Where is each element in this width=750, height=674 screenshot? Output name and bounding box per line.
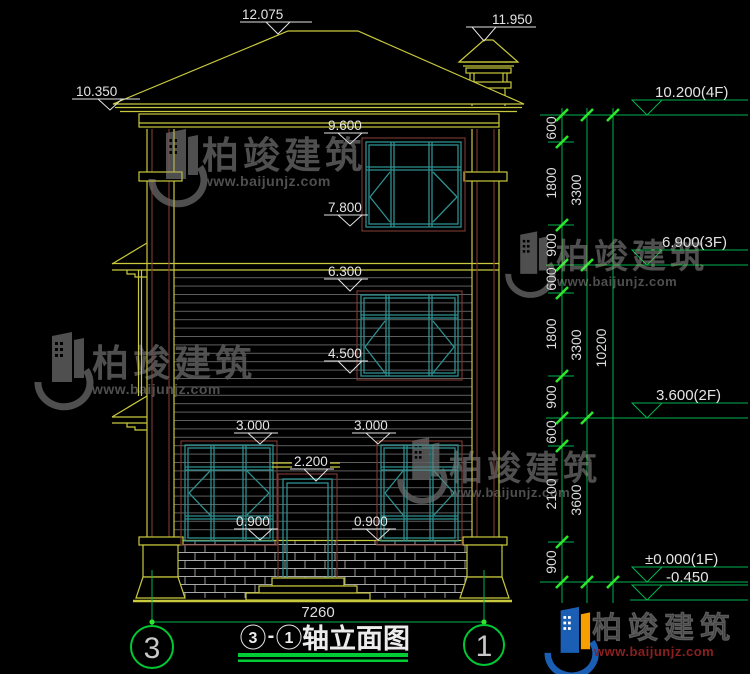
flag-eave-value: 10.350 bbox=[76, 84, 117, 99]
watermark-url: www.baijunjz.com bbox=[201, 173, 331, 189]
dim-node-left bbox=[149, 619, 154, 624]
dim-middle-0: 3300 bbox=[568, 174, 584, 205]
watermark-brand: 柏竣建筑 bbox=[449, 449, 601, 488]
dim-inner-5: 900 bbox=[543, 385, 559, 409]
watermark-url: www.baijunjz.com bbox=[449, 485, 570, 500]
dim-inner-6: 600 bbox=[543, 420, 559, 444]
dim-node-right bbox=[481, 619, 486, 624]
eave-fascia bbox=[139, 114, 499, 127]
watermark-brand: 柏竣建筑 bbox=[556, 237, 708, 276]
chimney-eave-band bbox=[466, 68, 511, 73]
title-underline-thick bbox=[238, 653, 408, 657]
title-text: 轴立面图 bbox=[302, 623, 410, 654]
level-1f-label: ±0.000(1F) bbox=[645, 551, 718, 568]
title-dash: - bbox=[268, 625, 275, 647]
dim-middle-1: 3300 bbox=[568, 329, 584, 360]
flag-w1-top-left-value: 3.000 bbox=[236, 418, 270, 433]
level-ground-label: -0.450 bbox=[666, 569, 709, 586]
title-underline-thin bbox=[238, 660, 408, 663]
title-axis-start: 3 bbox=[249, 630, 258, 647]
dim-inner-0: 600 bbox=[543, 116, 559, 140]
watermark-url: www.baijunjz.com bbox=[91, 381, 221, 397]
right-pilaster-base-cap bbox=[463, 537, 507, 545]
left-pilaster-base-cap bbox=[139, 537, 183, 545]
level-4f-label: 10.200(4F) bbox=[655, 84, 728, 101]
flag-ridge-value: 12.075 bbox=[242, 7, 283, 22]
watermark-brand: 柏竣建筑 bbox=[92, 342, 256, 384]
watermark-url: www.baijunjz.com bbox=[556, 274, 677, 289]
flag-w3-sill-value: 7.800 bbox=[328, 200, 362, 215]
flag-w1-sill-right-value: 0.900 bbox=[354, 514, 388, 529]
flag-w2-sill-value: 4.500 bbox=[328, 346, 362, 361]
left-pilaster-foot bbox=[136, 577, 185, 598]
width-dim-value: 7260 bbox=[301, 604, 334, 621]
dim-inner-4: 1800 bbox=[543, 318, 559, 349]
dim-overall: 10200 bbox=[593, 328, 609, 367]
watermark-brand: 柏竣建筑 bbox=[202, 134, 366, 176]
flag-w1-top-right-value: 3.000 bbox=[354, 418, 388, 433]
flag-w1-sill-left-value: 0.900 bbox=[236, 514, 270, 529]
level-2f-label: 3.600(2F) bbox=[656, 387, 721, 404]
dim-inner-8: 900 bbox=[543, 550, 559, 574]
right-pilaster-capital bbox=[464, 172, 507, 181]
axis-left-number: 3 bbox=[144, 632, 161, 665]
brand-logo-url: www.baijunjz.com bbox=[593, 644, 714, 659]
dim-middle-2: 3600 bbox=[568, 484, 584, 515]
axis-right-number: 1 bbox=[476, 630, 493, 663]
brand-logo-text: 柏竣建筑 bbox=[592, 611, 736, 645]
flag-w2-top-value: 6.300 bbox=[328, 264, 362, 279]
left-pilaster-pedestal bbox=[143, 545, 178, 577]
flag-chimney-value: 11.950 bbox=[492, 12, 532, 27]
elevation-drawing: 12.075 11.950 10.350 9.600 7.800 6.300 4… bbox=[0, 0, 750, 674]
cad-canvas: 12.075 11.950 10.350 9.600 7.800 6.300 4… bbox=[0, 0, 750, 674]
flag-door-top-value: 2.200 bbox=[294, 454, 328, 469]
dim-inner-1: 1800 bbox=[543, 167, 559, 198]
flag-w3-top-value: 9.600 bbox=[328, 118, 362, 133]
title-axis-end: 1 bbox=[285, 630, 294, 647]
